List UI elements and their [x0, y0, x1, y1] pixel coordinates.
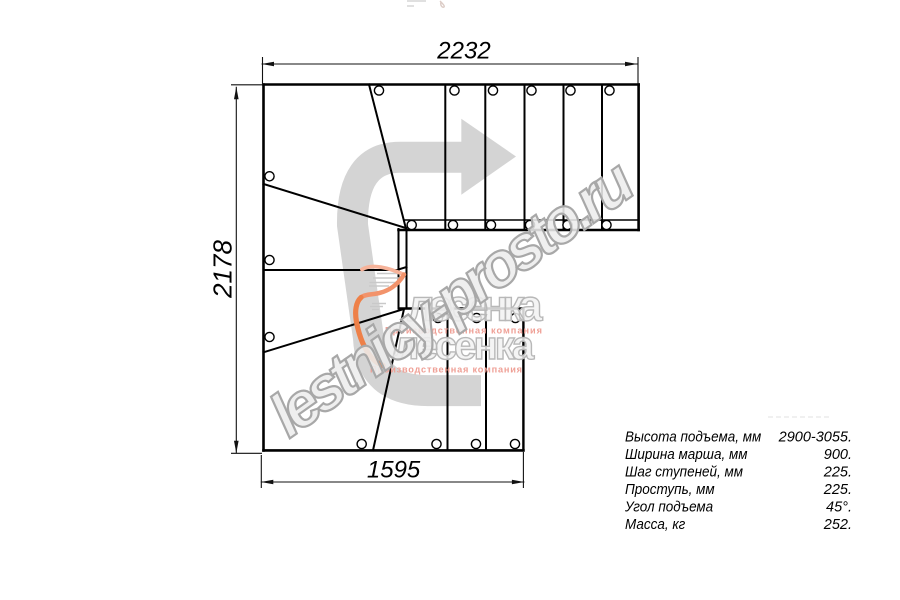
svg-text:2178: 2178	[208, 240, 238, 299]
svg-text:Проступь, мм: Проступь, мм	[625, 481, 715, 498]
svg-text:225.: 225.	[823, 482, 852, 498]
svg-text:Масса, кг: Масса, кг	[625, 516, 685, 533]
svg-text:Высота подъема, мм: Высота подъема, мм	[625, 428, 762, 445]
svg-text:Ширина марша, мм: Ширина марша, мм	[625, 446, 748, 463]
svg-text:2232: 2232	[436, 38, 490, 65]
svg-text:900.: 900.	[824, 447, 852, 463]
svg-text:1595: 1595	[367, 457, 421, 484]
svg-text:45°.: 45°.	[826, 500, 852, 516]
svg-text:2900-3055.: 2900-3055.	[778, 430, 852, 446]
svg-text:Угол подъема: Угол подъема	[624, 498, 713, 515]
svg-text:Шаг ступеней, мм: Шаг ступеней, мм	[625, 463, 743, 480]
svg-text:225.: 225.	[823, 465, 852, 481]
svg-text:252.: 252.	[823, 517, 852, 533]
